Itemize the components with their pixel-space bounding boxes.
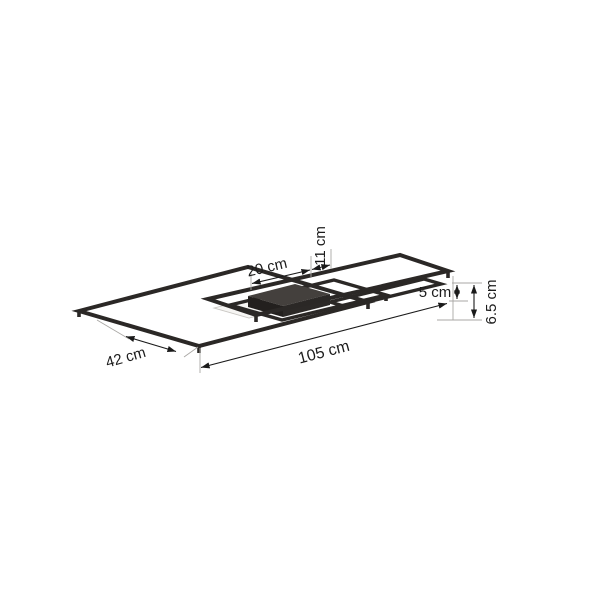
product-image-canvas: 20 cm 11 cm 5 cm 6.5 cm 105 cm 42 cm [0,0,600,600]
dim-label-42cm: 42 cm [104,344,148,372]
ceiling-light-dimension-diagram: 20 cm 11 cm 5 cm 6.5 cm 105 cm 42 cm [0,0,600,600]
dim-label-5cm: 5 cm [419,284,452,301]
dim-label-11cm: 11 cm [312,226,329,266]
dim-label-6-5cm: 6.5 cm [483,279,500,324]
dim-label-105cm: 105 cm [296,338,351,368]
